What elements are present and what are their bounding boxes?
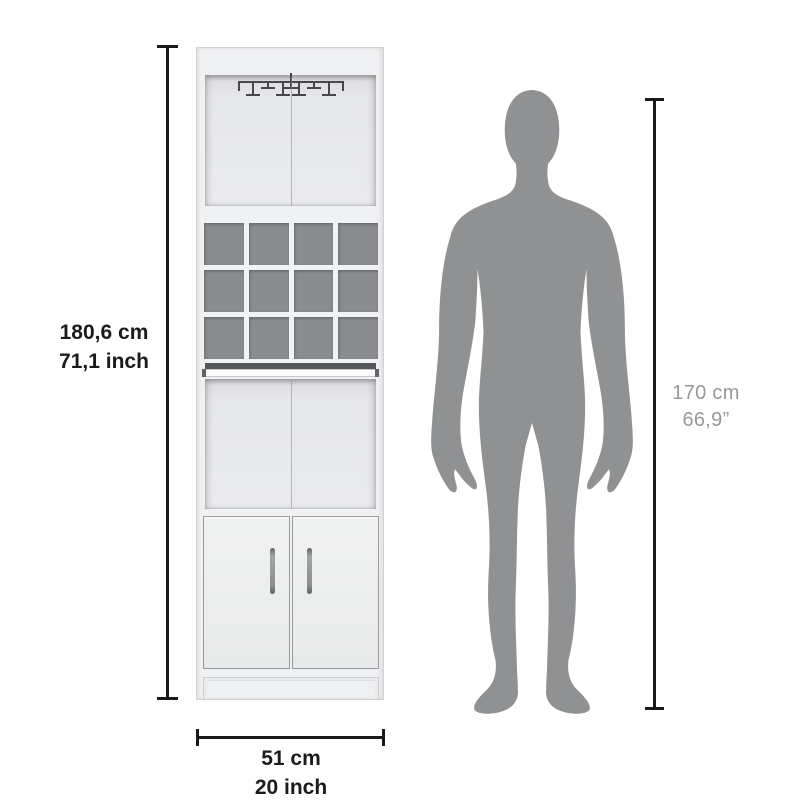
door-handle-left [270,548,275,594]
cabinet-width-inch: 20 inch [216,773,366,800]
cabinet-width-dimension-line [196,736,385,739]
stemware-rack-icon [233,73,349,101]
cabinet-door-right [292,516,379,669]
person-height-cm: 170 cm [658,380,754,407]
cabinet-doors [203,516,379,669]
lower-open-compartment [205,379,376,509]
cabinet-door-left [203,516,290,669]
wine-cubby-cell [294,317,334,359]
cabinet-height-dimension-line [166,45,169,700]
cabinet-width-label: 51 cm 20 inch [216,744,366,800]
wine-cubby-cell [249,223,289,265]
wine-cubby-cell [294,223,334,265]
wine-cubby-cell [204,223,244,265]
wine-cubby-cell [338,270,378,312]
cabinet-plinth [203,677,379,700]
door-handle-right [307,548,312,594]
person-height-label: 170 cm 66,9” [658,380,754,434]
upper-open-compartment [205,75,376,206]
cabinet-height-inch: 71,1 inch [48,347,160,376]
cabinet-width-cm: 51 cm [216,744,366,773]
wine-cubby-cell [338,317,378,359]
wine-cubby-cell [249,270,289,312]
wine-cubby-cell [204,317,244,359]
wine-cubby-cell [338,223,378,265]
bar-cabinet [196,47,384,700]
person-height-inch: 66,9” [658,407,754,434]
cabinet-height-label: 180,6 cm 71,1 inch [48,318,160,376]
product-dimension-diagram: 180,6 cm 71,1 inch [0,0,800,800]
cabinet-height-cm: 180,6 cm [48,318,160,347]
wine-cubby-cell [249,317,289,359]
wine-cubby-cell [204,270,244,312]
wine-cubby-cell [294,270,334,312]
person-silhouette [426,90,638,714]
pullout-tray-rail [202,369,379,377]
person-height-dimension-line [653,98,656,710]
wine-cubby-grid [204,223,378,359]
